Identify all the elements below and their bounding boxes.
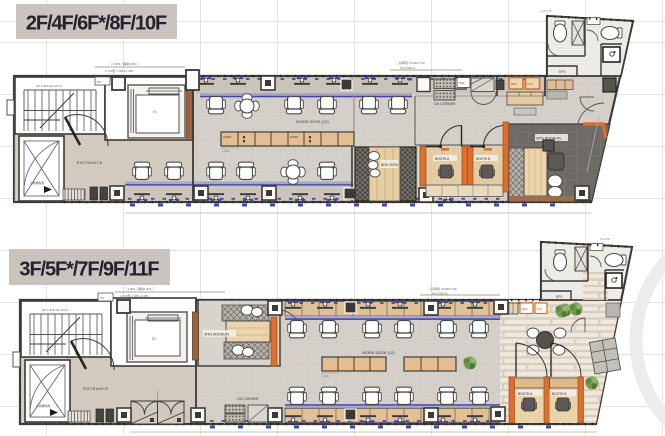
svg-text:REF: REF xyxy=(511,82,517,86)
svg-text:3F/5F*/7F/9F/11F: 3F/5F*/7F/9F/11F xyxy=(19,259,159,281)
svg-text:STK: STK xyxy=(537,307,543,311)
svg-text:△基準階 3,640/2,730: △基準階 3,640/2,730 xyxy=(396,60,425,65)
svg-text:1,600: 1,600 xyxy=(222,149,229,153)
svg-text:2,730型 1,365+1,365: 2,730型 1,365+1,365 xyxy=(120,293,148,298)
svg-text:WORK DESK (12): WORK DESK (12) xyxy=(296,119,329,124)
svg-text:▽+2,275: ▽+2,275 xyxy=(540,9,552,13)
svg-text:W1600: W1600 xyxy=(290,135,299,139)
svg-text:REF: REF xyxy=(522,307,528,311)
svg-text:1,600: 1,600 xyxy=(322,374,329,378)
svg-text:EPS: EPS xyxy=(559,70,565,74)
svg-text:ENTRANCE: ENTRANCE xyxy=(77,160,103,165)
svg-text:W=1,820×2: W=1,820×2 xyxy=(400,66,416,70)
svg-text:W=1,820×2: W=1,820×2 xyxy=(432,292,448,296)
svg-text:△基準階 3,640/2,730: △基準階 3,640/2,730 xyxy=(428,286,457,291)
svg-text:STK: STK xyxy=(527,82,533,86)
svg-text:BOX SOFA: BOX SOFA xyxy=(381,163,399,167)
svg-text:BOOTH B: BOOTH B xyxy=(476,157,490,161)
svg-text:BOOTH A: BOOTH A xyxy=(435,157,450,161)
svg-text:OA CORNER: OA CORNER xyxy=(434,102,456,106)
svg-text:BOOTH A: BOOTH A xyxy=(518,392,533,396)
svg-text:PS: PS xyxy=(100,296,104,300)
svg-text:EPS: EPS xyxy=(556,295,562,299)
svg-text:WORK DESK (12): WORK DESK (12) xyxy=(362,350,395,355)
svg-text:W1600: W1600 xyxy=(223,135,232,139)
svg-text:▽2,275: ▽2,275 xyxy=(600,237,610,241)
svg-text:PS: PS xyxy=(97,80,101,84)
svg-text:2,730型 1,365+1,365: 2,730型 1,365+1,365 xyxy=(105,68,133,73)
svg-text:ENTRANCE: ENTRANCE xyxy=(83,386,109,391)
svg-text:▽1,801 / 踊場1,801▽: ▽1,801 / 踊場1,801▽ xyxy=(125,286,155,291)
svg-text:小荷物専用: 小荷物専用 xyxy=(30,181,44,185)
svg-text:UP 1,801/16=112.5: UP 1,801/16=112.5 xyxy=(36,84,62,88)
svg-text:▽1,801 / 踊場1,801▽: ▽1,801 / 踊場1,801▽ xyxy=(110,61,140,66)
svg-text:UP 1,801/16=112.5: UP 1,801/16=112.5 xyxy=(42,308,68,312)
svg-text:2F/4F/6F*/8F/10F: 2F/4F/6F*/8F/10F xyxy=(26,13,167,35)
svg-text:MTG ROOM (4): MTG ROOM (4) xyxy=(205,333,229,337)
svg-text:OA CORNER: OA CORNER xyxy=(237,397,259,401)
svg-text:SINK: SINK xyxy=(459,82,465,85)
svg-text:BOOTH B: BOOTH B xyxy=(552,392,566,396)
svg-text:小荷物専用: 小荷物専用 xyxy=(36,404,50,408)
